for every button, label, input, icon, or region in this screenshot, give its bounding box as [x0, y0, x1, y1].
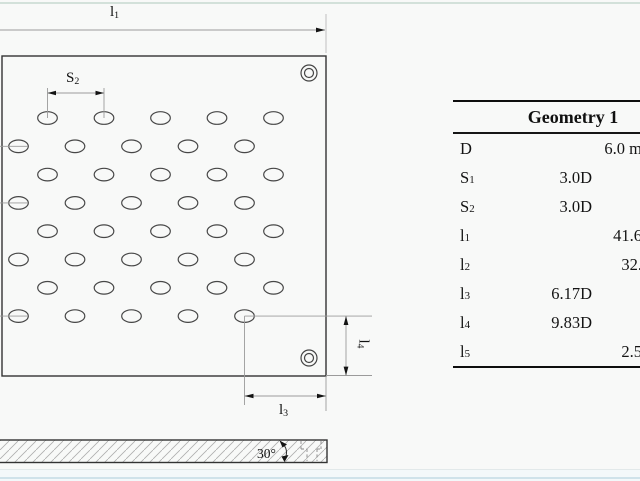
- param-subscript: 5: [465, 348, 470, 360]
- dimension-s2: [48, 88, 105, 118]
- plate-hole: [65, 140, 85, 153]
- plate-hole: [178, 140, 198, 153]
- arrowhead-left-icon: [48, 91, 57, 96]
- value-in-d: 9.83D: [513, 308, 592, 337]
- param-subscript: 1: [469, 174, 474, 186]
- value-in-d: 3.0D: [513, 163, 592, 192]
- table-row: l3 6.17D: [453, 279, 640, 308]
- label-chamfer-angle: 30°: [257, 447, 276, 461]
- table-row: S2 3.0D: [453, 192, 640, 221]
- plate-hole: [178, 253, 198, 266]
- value-in-d: [513, 250, 592, 279]
- table-row: l4 9.83D: [453, 308, 640, 337]
- arrowhead-right-icon: [96, 91, 105, 96]
- plate-hole: [38, 168, 58, 181]
- value-in-mm: [592, 163, 640, 192]
- plate-hole: [235, 140, 255, 153]
- plate-hole: [94, 225, 114, 238]
- geometry-table: Geometry 1 D 6.0 m S1 3.0D S2 3.0D l1 41…: [453, 100, 640, 368]
- param-name: S: [460, 197, 469, 216]
- param-name: D: [460, 139, 472, 158]
- table-header: Geometry 1: [453, 102, 640, 132]
- value-in-d: [513, 134, 592, 163]
- label-l1: l1: [110, 5, 119, 21]
- plate-hole: [65, 253, 85, 266]
- plate-hole: [207, 282, 227, 295]
- plate-front-view: [2, 56, 326, 376]
- param-subscript: 2: [469, 203, 474, 215]
- arrowhead-right-icon: [317, 394, 326, 399]
- value-in-mm: 2.5: [592, 337, 640, 366]
- dimension-l1: [0, 14, 326, 53]
- screw-hole-top-right: [301, 65, 317, 81]
- cutoff-dimension-stubs: [0, 146, 28, 316]
- plate-hole: [151, 282, 171, 295]
- value-in-mm: 6.0 m: [592, 134, 640, 163]
- bottom-accent-line: [0, 477, 640, 479]
- arrowhead-up-icon: [344, 316, 349, 325]
- value-in-d: 6.17D: [513, 279, 592, 308]
- plate-hole: [207, 168, 227, 181]
- dimension-l4: [245, 316, 373, 375]
- label-s2: S2: [66, 71, 79, 87]
- plate-hole: [94, 282, 114, 295]
- table-row: l2 32.: [453, 250, 640, 279]
- bottom-accent-band: [0, 469, 640, 481]
- plate-hole: [178, 197, 198, 210]
- plate-hole: [65, 310, 85, 323]
- value-in-mm: [592, 279, 640, 308]
- value-in-mm: [592, 308, 640, 337]
- hole-pattern: [9, 112, 284, 323]
- plate-hole: [9, 253, 29, 266]
- param-name: S: [460, 168, 469, 187]
- table-row: S1 3.0D: [453, 163, 640, 192]
- value-in-mm: [592, 192, 640, 221]
- screw-hole-bottom-right: [301, 350, 317, 366]
- plate-hole: [235, 197, 255, 210]
- plate-hole: [122, 253, 142, 266]
- param-subscript: 3: [465, 290, 470, 302]
- table-row: l5 2.5: [453, 337, 640, 366]
- plate-hole: [151, 225, 171, 238]
- arrowhead-right-icon: [316, 28, 325, 33]
- figure-page: { "figure": { "description_labels": { "l…: [0, 0, 640, 480]
- value-in-d: [513, 337, 592, 366]
- param-subscript: 4: [465, 319, 470, 331]
- dimension-l3: [245, 316, 327, 411]
- table-bottom-rule: [453, 366, 640, 368]
- param-subscript: 1: [465, 232, 470, 244]
- value-in-mm: 41.6: [592, 221, 640, 250]
- value-in-d: 3.0D: [513, 192, 592, 221]
- plate-hole: [235, 253, 255, 266]
- plate-side-view: [0, 440, 327, 463]
- plate-hole: [122, 310, 142, 323]
- plate-hole: [38, 225, 58, 238]
- plate-hole: [264, 112, 284, 125]
- plate-hole: [65, 197, 85, 210]
- param-subscript: 2: [465, 261, 470, 273]
- plate-hole: [151, 168, 171, 181]
- plate-hole: [122, 140, 142, 153]
- plate-hole: [94, 168, 114, 181]
- value-in-d: [513, 221, 592, 250]
- plate-hole: [207, 225, 227, 238]
- table-row: D 6.0 m: [453, 134, 640, 163]
- plate-hole: [264, 225, 284, 238]
- table-row: l1 41.6: [453, 221, 640, 250]
- plate-hole: [38, 282, 58, 295]
- plate-hole: [264, 282, 284, 295]
- arrowhead-down-icon: [344, 367, 349, 376]
- label-l3: l3: [279, 403, 288, 419]
- plate-hole: [122, 197, 142, 210]
- arrowhead-left-icon: [245, 394, 254, 399]
- plate-hole: [178, 310, 198, 323]
- value-in-mm: 32.: [592, 250, 640, 279]
- plate-hole: [264, 168, 284, 181]
- table-body: D 6.0 m S1 3.0D S2 3.0D l1 41.6 l2 32. l…: [453, 134, 640, 367]
- plate-hole: [207, 112, 227, 125]
- plate-hole: [151, 112, 171, 125]
- label-l4: l4: [355, 339, 371, 348]
